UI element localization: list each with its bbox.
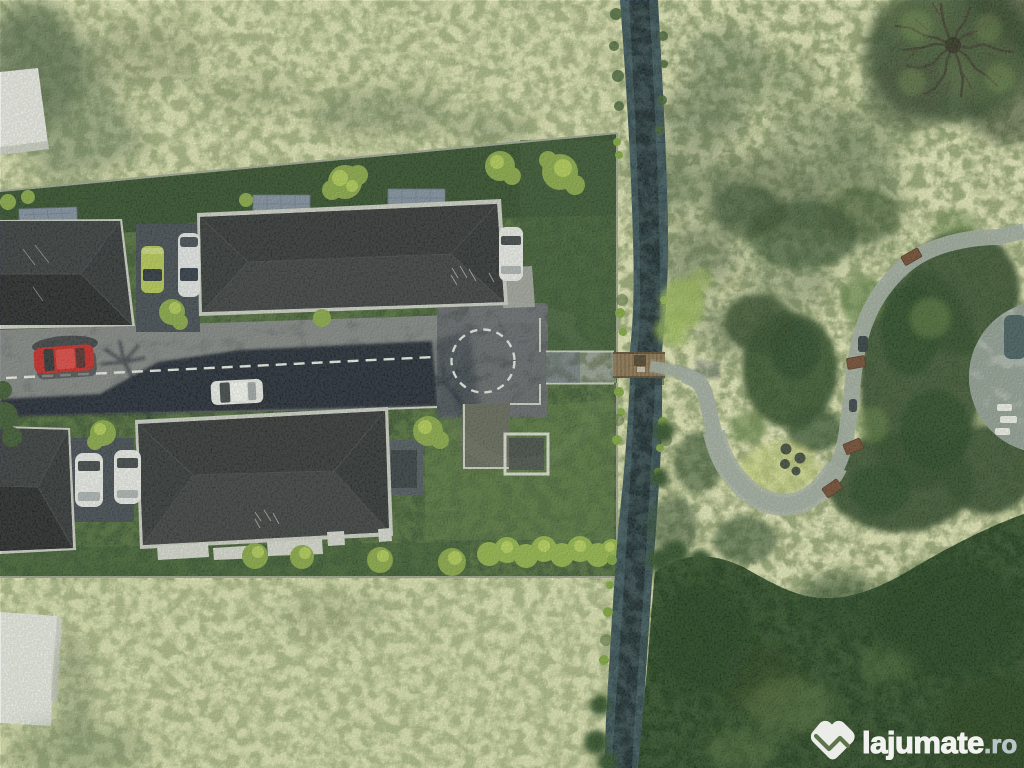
svg-text:lajumate: lajumate xyxy=(862,725,984,760)
svg-text:.ro: .ro xyxy=(984,729,1017,759)
